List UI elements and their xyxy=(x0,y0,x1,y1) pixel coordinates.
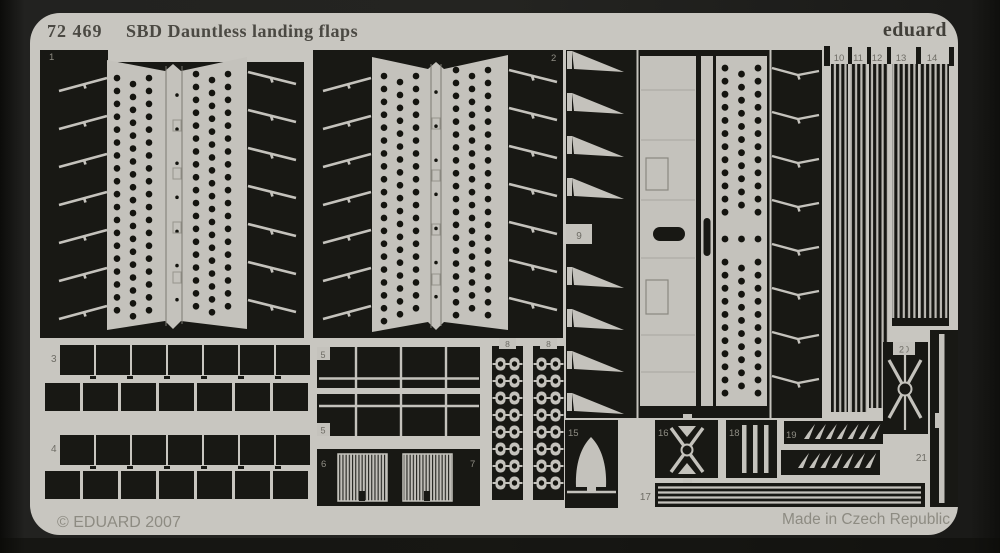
part-label-19: 19 xyxy=(786,430,797,441)
part-17-strips: 17 xyxy=(640,483,925,507)
part-5b-strip: 5 xyxy=(317,394,480,436)
part-label-16: 16 xyxy=(658,428,669,439)
photo-etch-product-image: 72 469 SBD Dauntless landing flaps eduar… xyxy=(0,0,1000,553)
part-label-7: 7 xyxy=(470,459,475,470)
part-label-13: 13 xyxy=(896,53,907,64)
part-label-21: 21 xyxy=(916,453,928,464)
part-label-10: 10 xyxy=(834,53,845,64)
part-1-flap: 1 xyxy=(40,50,304,338)
part-8a-clips-column: 8 xyxy=(492,338,523,500)
copyright-text: © EDUARD 2007 xyxy=(57,514,181,531)
part-label-5a: 5 xyxy=(320,350,325,360)
part-16-brace: 16 xyxy=(655,414,718,484)
part-9-flap: 9 xyxy=(566,50,822,418)
part-label-14: 14 xyxy=(927,53,938,64)
part-label-8a: 8 xyxy=(505,339,510,349)
part-5a-strip: 5 xyxy=(317,347,480,388)
part-label-9: 9 xyxy=(576,231,582,242)
part-label-5b: 5 xyxy=(320,426,325,436)
part-label-11: 11 xyxy=(853,53,863,64)
part-label-1: 1 xyxy=(49,52,54,63)
fret-canvas: 72 469 SBD Dauntless landing flaps eduar… xyxy=(0,0,1000,553)
part-label-18: 18 xyxy=(729,428,740,439)
part-label-12: 12 xyxy=(872,53,883,64)
part-label-17: 17 xyxy=(640,492,652,503)
part-label-8b: 8 xyxy=(546,339,551,349)
catalog-number: 72 469 xyxy=(47,21,103,41)
part-15-cone: 15 xyxy=(565,420,618,508)
part-8b-clips-column: 8 xyxy=(533,338,564,500)
part-label-15: 15 xyxy=(568,428,579,439)
part-18-bars: 18 xyxy=(726,420,777,478)
bottom-shadow xyxy=(0,538,1000,553)
part-6-7-grilles: 6 7 xyxy=(317,449,480,506)
brand-logo: eduard xyxy=(883,19,947,41)
part-label-4: 4 xyxy=(51,444,57,455)
part-20-brace: 20 xyxy=(883,342,928,434)
product-title: SBD Dauntless landing flaps xyxy=(126,21,358,41)
made-in-text: Made in Czech Republic xyxy=(782,511,950,528)
part-2-flap: 2 xyxy=(313,50,563,338)
part-label-6: 6 xyxy=(321,459,326,470)
part-label-2: 2 xyxy=(551,53,556,64)
part-label-3: 3 xyxy=(51,354,57,365)
